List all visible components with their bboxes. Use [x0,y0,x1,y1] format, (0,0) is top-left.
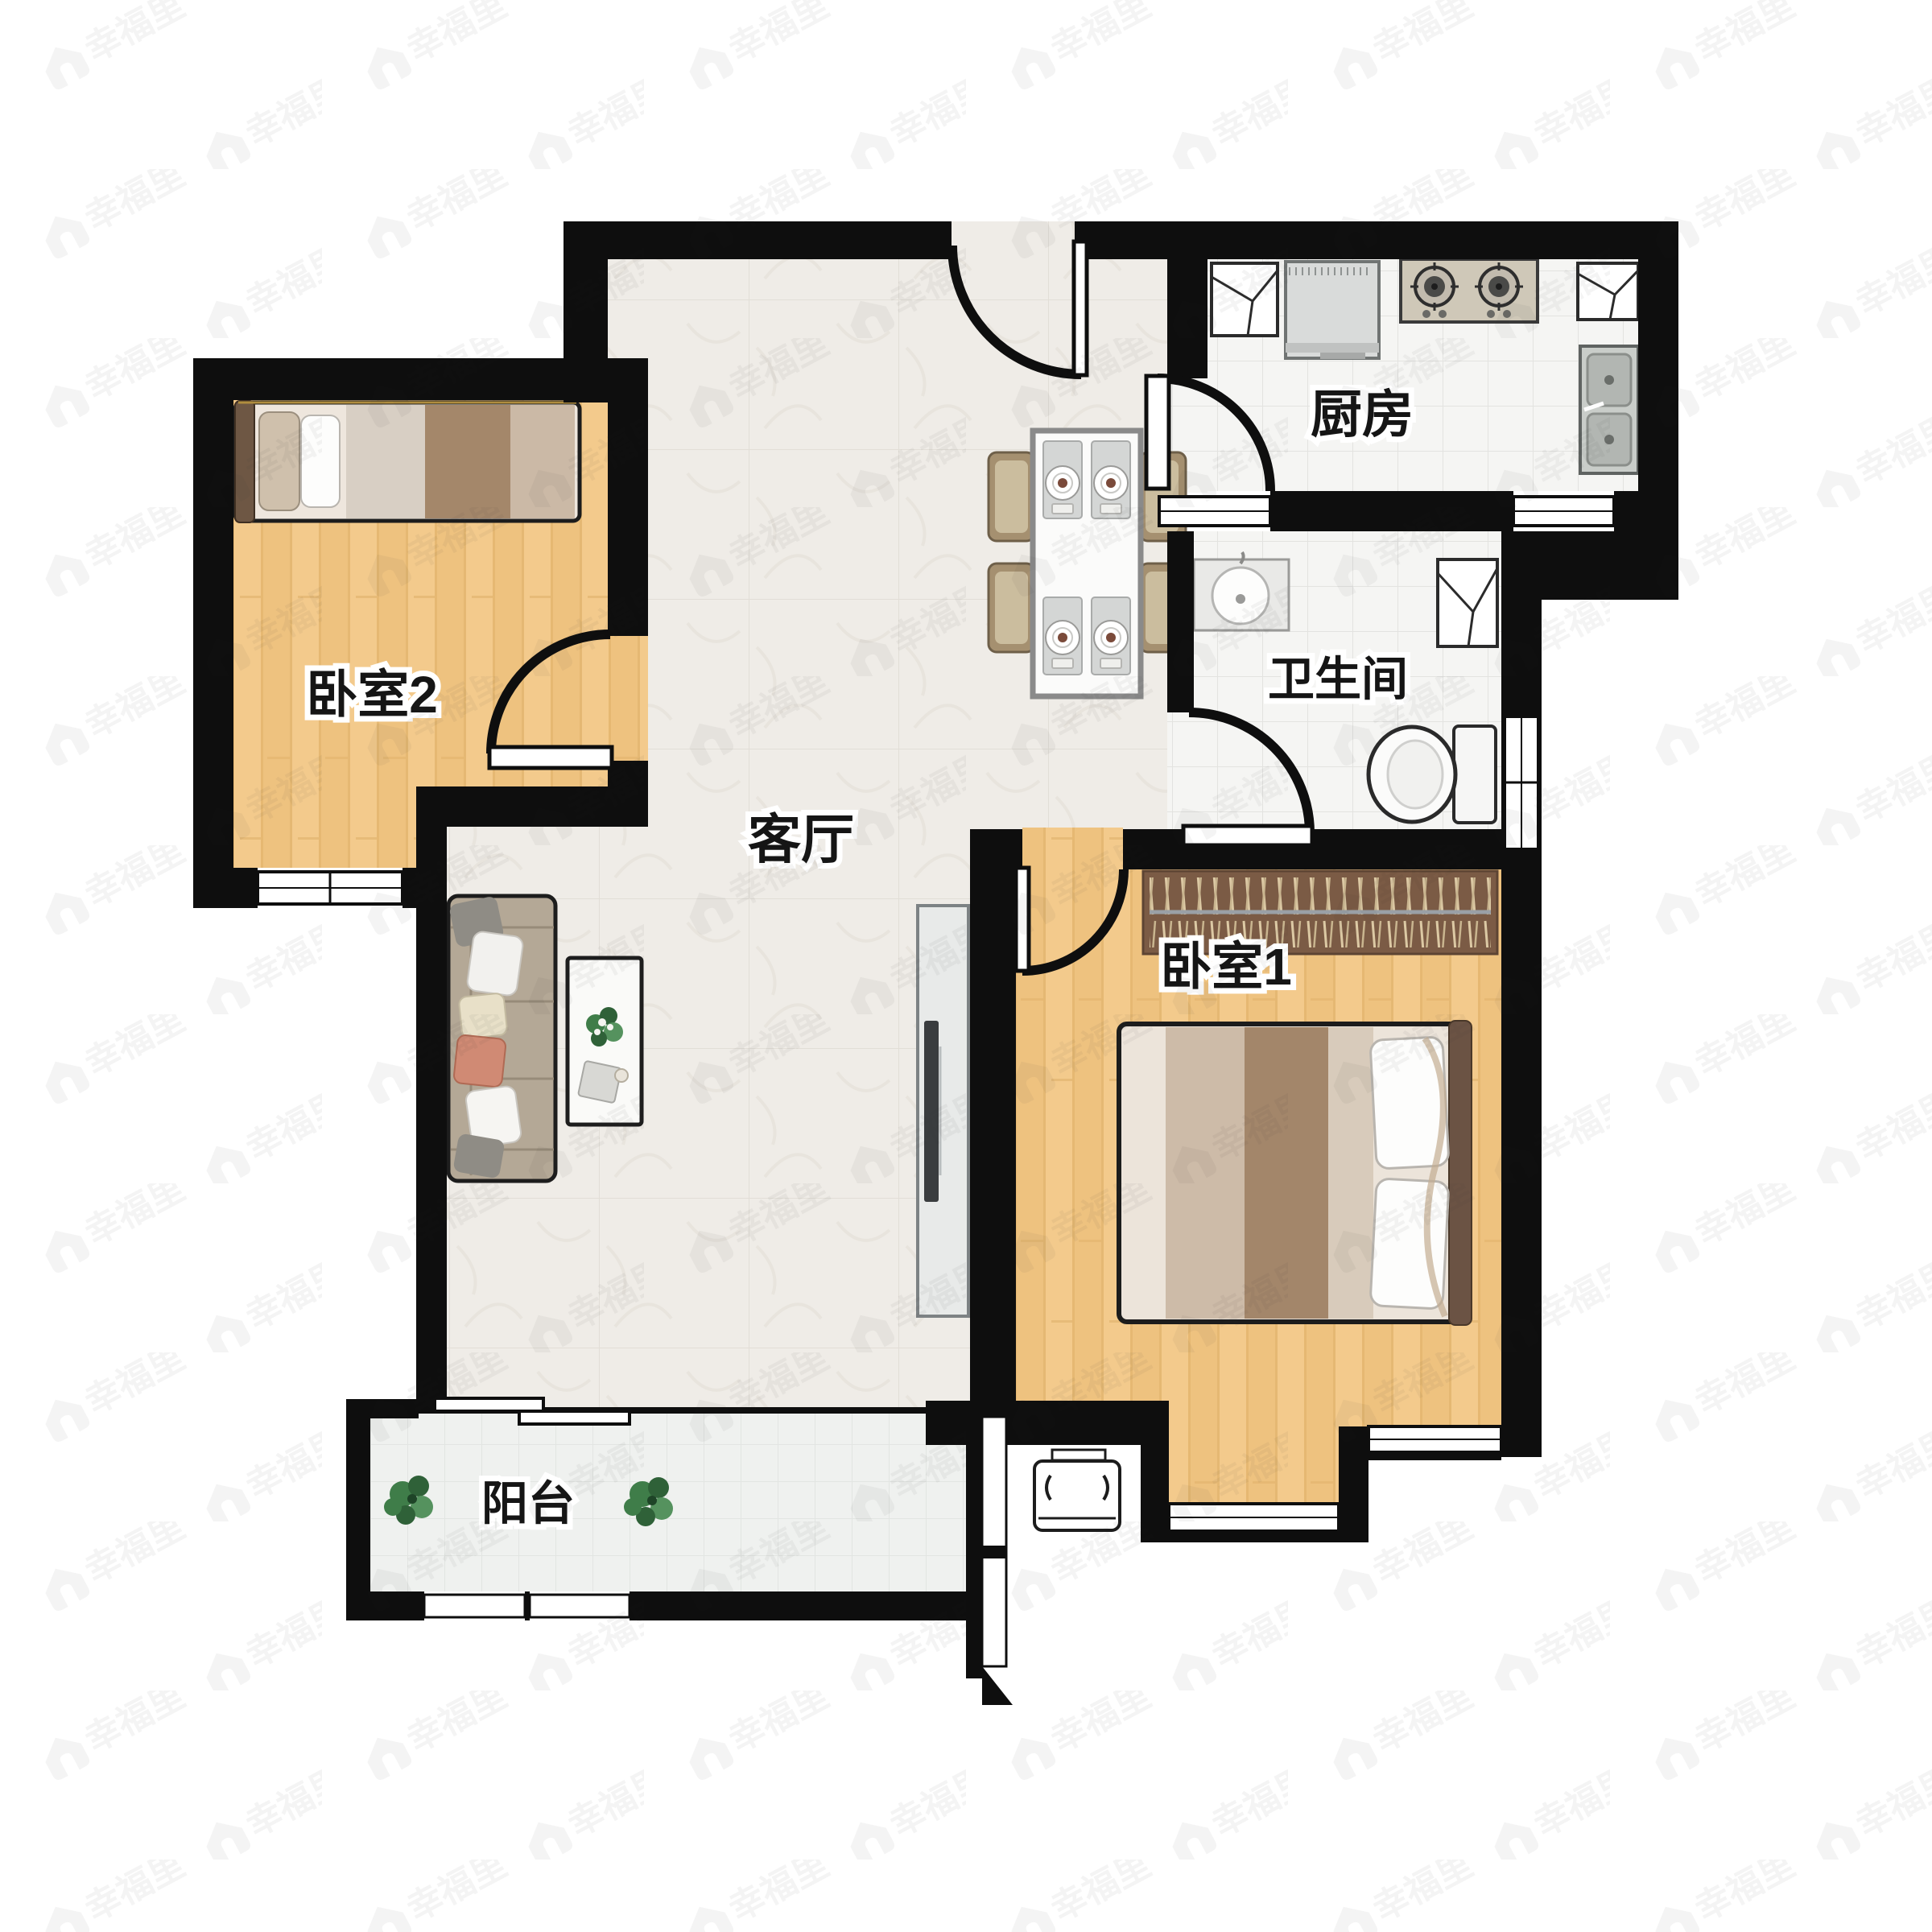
floorplan-svg: 幸福里 幸福里 [0,0,1932,1932]
watermark-overlay [0,0,1932,1932]
floorplan-canvas: 幸福里 幸福里 [0,0,1932,1932]
